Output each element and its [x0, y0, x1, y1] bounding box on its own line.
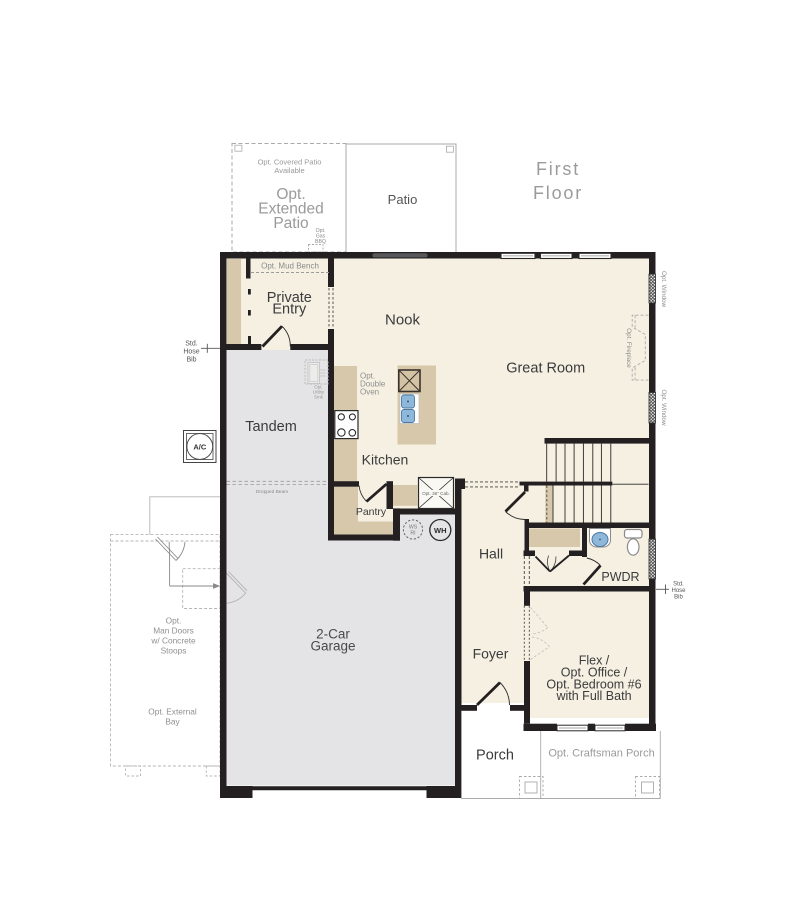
svg-text:Nook: Nook: [385, 312, 421, 329]
svg-text:Man Doors: Man Doors: [153, 626, 194, 636]
svg-text:Floor: Floor: [533, 183, 583, 203]
svg-text:Opt. Fireplace: Opt. Fireplace: [625, 328, 632, 368]
svg-text:Dropped Beam: Dropped Beam: [256, 489, 288, 495]
svg-text:Std.: Std.: [673, 582, 684, 588]
svg-text:w/ Concrete: w/ Concrete: [150, 636, 196, 646]
svg-text:Patio: Patio: [273, 215, 308, 232]
svg-text:Hose: Hose: [183, 349, 199, 356]
svg-text:Bay: Bay: [165, 717, 180, 727]
svg-text:Foyer: Foyer: [473, 646, 509, 662]
svg-text:Entry: Entry: [272, 302, 307, 318]
svg-text:Porch: Porch: [476, 748, 514, 764]
svg-text:Garage: Garage: [310, 639, 355, 654]
svg-text:Available: Available: [274, 166, 304, 175]
svg-text:Patio: Patio: [388, 192, 418, 207]
svg-text:Hose: Hose: [671, 588, 686, 594]
svg-text:Opt. Mud Bench: Opt. Mud Bench: [261, 262, 319, 271]
svg-text:Opt.: Opt.: [166, 616, 182, 626]
svg-text:Tandem: Tandem: [245, 419, 297, 435]
svg-text:First: First: [536, 159, 580, 179]
svg-text:Stoops: Stoops: [161, 646, 187, 656]
svg-text:with Full Bath: with Full Bath: [555, 689, 631, 703]
svg-text:Bib: Bib: [186, 357, 196, 364]
svg-text:Pantry: Pantry: [356, 506, 387, 518]
svg-text:Opt. Craftsman Porch: Opt. Craftsman Porch: [548, 748, 654, 760]
svg-text:Bib: Bib: [674, 595, 683, 601]
svg-text:Opt. 36" Cab.: Opt. 36" Cab.: [422, 491, 450, 496]
svg-text:WH: WH: [434, 526, 447, 535]
svg-text:Opt. Window: Opt. Window: [660, 271, 667, 307]
svg-text:A/C: A/C: [193, 442, 207, 451]
svg-text:PWDR: PWDR: [601, 570, 639, 584]
svg-text:Oven: Oven: [360, 388, 379, 397]
svg-text:Std.: Std.: [185, 341, 198, 348]
svg-text:Sink: Sink: [314, 395, 324, 400]
svg-text:Opt. Window: Opt. Window: [660, 389, 667, 425]
svg-text:Opt. External: Opt. External: [148, 707, 197, 717]
svg-text:Kitchen: Kitchen: [362, 452, 409, 468]
svg-text:RI: RI: [410, 531, 415, 537]
svg-text:Great Room: Great Room: [506, 361, 585, 377]
svg-text:Hall: Hall: [479, 546, 503, 562]
